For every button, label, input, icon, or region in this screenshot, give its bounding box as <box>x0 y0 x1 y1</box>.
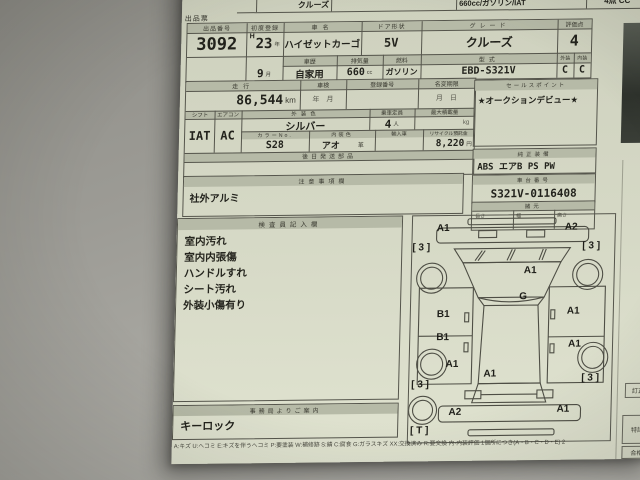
stacked-sheet-score: 4点 CC <box>604 0 640 6</box>
inspector-notes-list: 室内汚れ室内内張傷ハンドルすれシート汚れ外装小傷有り <box>183 232 395 314</box>
office-info-box: 事務局よりご案内 キーロック <box>172 403 399 441</box>
diagram-mark: A1 <box>445 359 458 370</box>
notes-box: 注意事項欄 社外アルミ <box>182 173 464 217</box>
car-name-value: ハイゼットカーゴ <box>284 33 360 54</box>
header-table: 出品番号 初度登録 車名 ドア形状 グレード 評価点 3092 H23年 9月 … <box>185 18 592 83</box>
history-value: 自家用 <box>283 66 335 80</box>
list-item: 外装小傷有り <box>183 296 393 314</box>
diagram-mark: A1 <box>483 368 496 379</box>
office-info-label: 事務局よりご案内 <box>173 404 397 417</box>
recheck-box: 再検 <box>621 458 640 464</box>
details-table: 走行 車検 登録番号 名変期限 86,544km 年 月 月 日 シフト エアコ… <box>183 78 476 178</box>
model-code-value: EBD-S321V <box>421 64 555 79</box>
diagram-mark: A1 <box>568 339 581 350</box>
grid-line <box>375 130 376 151</box>
history-label: 車歴 <box>283 55 337 66</box>
inspector-label: 検査員記入欄 <box>178 217 402 231</box>
equipment-label: 純正装備 <box>473 148 595 158</box>
aircon-value: AC <box>214 118 242 152</box>
grid-line <box>456 0 458 10</box>
chassis-number-value: S321V-0116408 <box>472 185 594 200</box>
diagram-mark: [ 3 ] <box>581 372 599 383</box>
diagram-mark: [ 3 ] <box>582 240 600 251</box>
chassis-box: 車台番号 S321V-0116408 <box>471 173 596 203</box>
lot-number-value: 3092 <box>188 33 246 56</box>
interior-grade-value: C <box>574 63 589 76</box>
mileage-value: 86,544km <box>188 90 296 111</box>
diagram-mark: [ 3 ] <box>412 242 430 253</box>
payload-unit: kg <box>414 117 469 130</box>
special-note-box: 特記 <box>622 415 640 444</box>
leather-mark: 革 <box>353 138 369 151</box>
exterior-label: 外装 <box>557 53 574 63</box>
exterior-grade-value: C <box>557 64 572 77</box>
displacement-label: 排気量 <box>337 55 383 66</box>
interior-label: 内装 <box>574 52 591 62</box>
color-no-value: S28 <box>241 139 309 153</box>
fuel-value: ガソリン <box>383 65 419 78</box>
diagram-mark: B1 <box>436 332 449 343</box>
diagram-mark: A1 <box>567 306 580 317</box>
equipment-box: 純正装備 ABS エアB PS PW <box>472 147 597 174</box>
notes-label: 注意事項欄 <box>184 174 463 187</box>
auction-sheet: クルーズ 660cc/ガソリン/IAT 4点 CC 出品票 出品番号 初度登録 … <box>171 0 640 464</box>
shaken-value: 年 月 <box>300 91 346 108</box>
stacked-sheet-spec: 660cc/ガソリン/IAT <box>459 0 584 9</box>
correction-box: 訂正 <box>625 383 640 398</box>
capacity-value: 4人 <box>369 117 414 130</box>
notes-content: 社外アルミ <box>190 188 410 202</box>
sales-point-label: セールスポイント <box>475 79 597 90</box>
diagram-mark: [ T ] <box>410 425 429 436</box>
grid-line <box>346 80 348 109</box>
recycle-fee-value: 8,220円 <box>423 137 472 151</box>
door-shape-value: 5V <box>362 31 421 54</box>
diagram-mark: A2 <box>448 407 461 418</box>
name-change-value: 月 日 <box>418 91 475 106</box>
dark-photo-area <box>621 23 640 143</box>
diagram-mark: A1 <box>556 404 569 415</box>
chassis-number-label: 車台番号 <box>473 174 595 184</box>
first-reg-month-value: 9月 <box>246 67 281 80</box>
interior-color-value: アオ <box>309 138 353 152</box>
equipment-content: ABS エアB PS PW <box>477 159 591 171</box>
score-value: 4 <box>558 29 591 51</box>
stacked-sheet-grade: クルーズ <box>258 0 329 11</box>
grid-line <box>586 0 588 8</box>
diagram-mark: [ 3 ] <box>411 379 429 390</box>
diagram-mark: G <box>519 291 527 302</box>
desk-background: { "sheet": { "title": "出品票" }, "stack_ro… <box>0 0 640 480</box>
grid-line <box>331 0 333 11</box>
diagram-mark: A1 <box>524 265 537 276</box>
sales-point-content: ★オークションデビュー★ <box>478 93 594 106</box>
displacement-value: 660cc <box>337 66 381 80</box>
sales-point-box: セールスポイント ★オークションデビュー★ <box>473 78 599 146</box>
diagram-mark: A1 <box>437 223 450 234</box>
shift-value: IAT <box>185 119 215 153</box>
era-letter: H <box>250 33 255 40</box>
vehicle-diagram: A1A2[ 3 ][ 3 ]A1GB1A1B1A1A1A1[ 3 ][ 3 ]A… <box>407 213 616 443</box>
grade-value: クルーズ <box>422 30 557 54</box>
score-label: 評価点 <box>557 19 591 28</box>
fuel-label: 燃料 <box>383 54 421 64</box>
first-reg-year-value: H23年 <box>247 33 283 55</box>
diagram-mark: A2 <box>565 222 578 233</box>
first-reg-label: 初度登録 <box>247 23 284 32</box>
inspector-box: 検査員記入欄 室内汚れ室内内張傷ハンドルすれシート汚れ外装小傷有り <box>173 216 403 403</box>
diagram-mark: B1 <box>437 309 450 320</box>
office-info-content: キーロック <box>180 417 390 433</box>
grid-line <box>472 209 594 211</box>
